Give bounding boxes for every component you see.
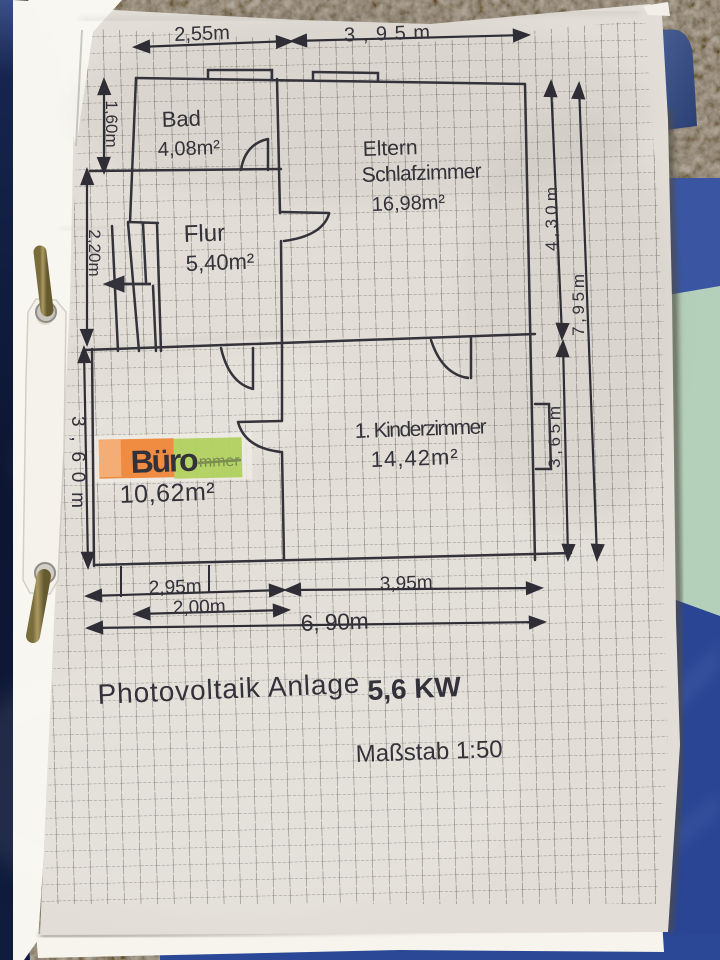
svg-text:Maßstab 1:50: Maßstab 1:50 [355,736,503,768]
svg-text:2,20m: 2,20m [85,229,104,276]
svg-text:Bad: Bad [161,106,201,132]
svg-text:5,40m²: 5,40m² [185,249,254,276]
svg-text:7,95m: 7,95m [569,274,588,336]
svg-text:3,65m: 3,65m [545,406,564,468]
svg-text:2,55m: 2,55m [174,22,230,46]
svg-text:Eltern: Eltern [362,136,418,161]
svg-text:2,00m: 2,00m [172,596,226,619]
svg-text:2,95m: 2,95m [148,576,202,599]
svg-text:16,98m²: 16,98m² [371,191,445,216]
svg-text:3,95m: 3,95m [379,572,433,595]
svg-text:Flur: Flur [183,220,225,248]
svg-text:1. Kinderzimmer: 1. Kinderzimmer [354,415,487,443]
svg-text:1,60m: 1,60m [102,100,121,147]
svg-text:Schlafzimmer: Schlafzimmer [361,160,482,187]
svg-text:10,62m²: 10,62m² [119,478,215,509]
svg-text:4,08m²: 4,08m² [157,137,220,161]
svg-text:6, 90m: 6, 90m [300,608,369,636]
svg-text:5,6 KW: 5,6 KW [367,671,462,706]
svg-text:Büro: Büro [130,442,199,480]
svg-text:14,42m²: 14,42m² [370,444,458,472]
